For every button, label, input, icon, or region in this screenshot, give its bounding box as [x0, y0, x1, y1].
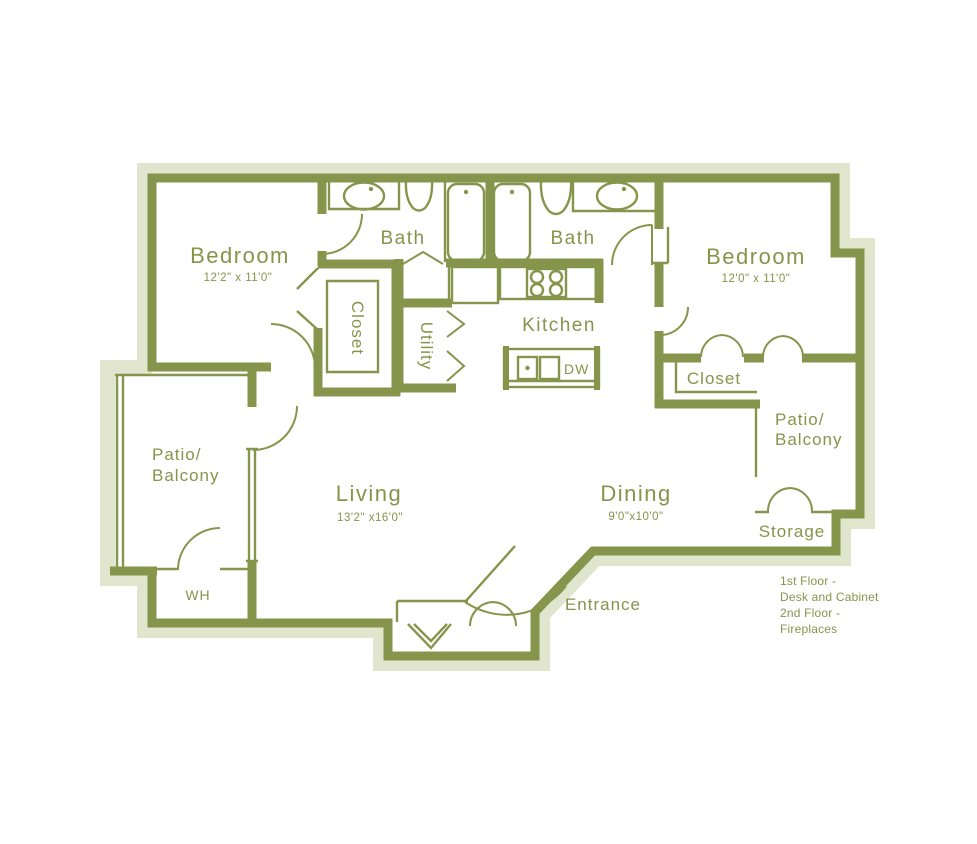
living-label: Living [336, 481, 402, 506]
utility-label: Utility [417, 322, 436, 371]
dining-label: Dining [600, 481, 671, 506]
note-line-1: 1st Floor - [780, 574, 836, 588]
patio-right-label-line2: Balcony [775, 430, 842, 449]
bedroom-left-dims: 12'2" x 11'0" [204, 272, 273, 284]
closet-left-label: Closet [348, 301, 367, 355]
storage-label: Storage [759, 522, 826, 541]
patio-right-label-line1: Patio/ [775, 410, 824, 429]
closet-right-label: Closet [687, 369, 741, 388]
patio-left-label-line1: Patio/ [152, 445, 201, 464]
kitchen-label: Kitchen [522, 315, 596, 336]
dining-dims: 9'0"x10'0" [608, 511, 663, 523]
bath-right-label: Bath [550, 228, 595, 249]
bath-left-label: Bath [380, 228, 425, 249]
note-line-4: Fireplaces [780, 622, 837, 636]
bedroom-left-label: Bedroom [190, 243, 290, 268]
patio-left-label-line2: Balcony [152, 466, 219, 485]
note-line-2: Desk and Cabinet [780, 590, 879, 604]
wh-label: WH [185, 587, 210, 603]
bedroom-right-label: Bedroom [706, 244, 806, 269]
dishwasher-label: DW [564, 361, 589, 377]
floor-plan-page: Bedroom 12'2" x 11'0" Bedroom 12'0" x 11… [0, 0, 977, 844]
living-dims: 13'2" x16'0" [337, 512, 403, 524]
note-line-3: 2nd Floor - [780, 606, 840, 620]
floor-plan: Bedroom 12'2" x 11'0" Bedroom 12'0" x 11… [0, 0, 977, 844]
entrance-label: Entrance [565, 595, 641, 614]
bedroom-right-dims: 12'0" x 11'0" [722, 273, 791, 285]
